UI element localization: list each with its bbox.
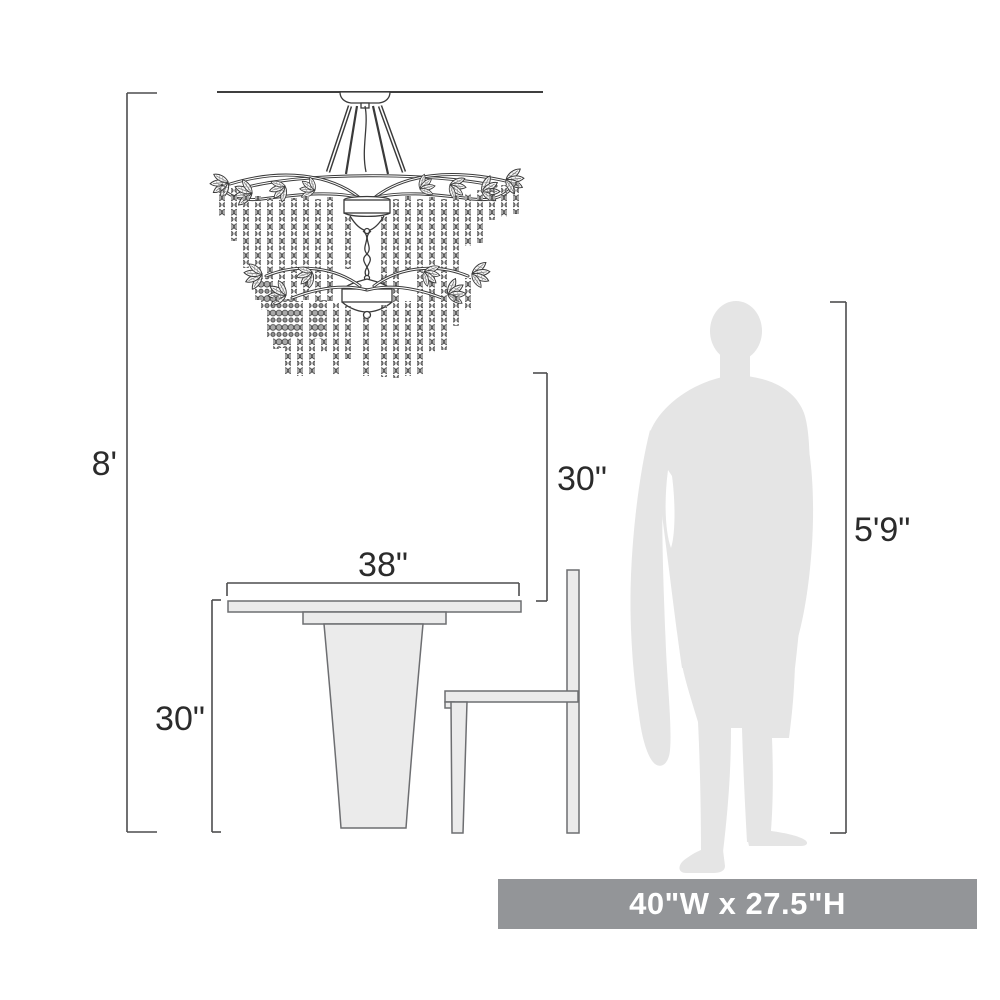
chandelier-canopy (340, 92, 390, 108)
dim-line-5ft9 (830, 302, 846, 833)
person-height-label: 5'9" (854, 511, 910, 550)
dimension-diagram: 8' 30" 38" 30" 5'9" 40"W x 27.5"H (0, 0, 1000, 1000)
fixture-size-banner: 40"W x 27.5"H (498, 879, 977, 929)
table-drawing (228, 601, 521, 828)
fixture-size-text: 40"W x 27.5"H (629, 886, 846, 922)
ceiling-height-label: 8' (40, 445, 117, 484)
table-height-label: 30" (130, 700, 230, 739)
chandelier-drawing (206, 92, 527, 378)
person-silhouette (630, 301, 813, 873)
dim-line-30in-clearance (533, 373, 547, 601)
table-width-label: 38" (333, 546, 433, 585)
fixture-to-table-label: 30" (557, 460, 607, 499)
diagram-line-art (0, 0, 1000, 1000)
chandelier-rods (328, 106, 404, 174)
